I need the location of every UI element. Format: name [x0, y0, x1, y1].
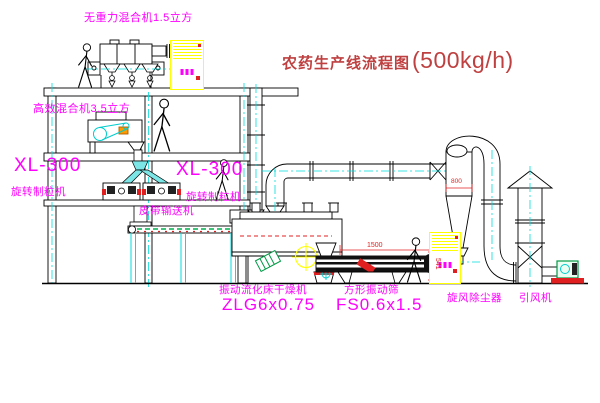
granulator-right-drawing — [142, 183, 181, 200]
control-cabinet-icon — [170, 40, 204, 90]
fan-drawing — [542, 261, 584, 284]
label-fan-name: 引风机 — [519, 293, 552, 304]
dimension-screen-length: 1500 — [367, 242, 383, 249]
label-granulator-name-mid: 旋转制粒机 — [186, 192, 241, 203]
cabinet-indicator-dot — [455, 236, 458, 239]
label-screen-model: FS0.6x1.5 — [336, 296, 423, 313]
label-belt-conveyor: 皮带输送机 — [139, 206, 194, 217]
high-efficiency-mixer-drawing — [88, 112, 144, 153]
label-cyclone-name: 旋风除尘器 — [447, 293, 502, 304]
title-capacity: (500kg/h) — [412, 47, 514, 74]
label-dryer-model: ZLG6x0.75 — [222, 296, 315, 313]
cad-drawing-viewport: 农药生产线流程图 (500kg/h) 无重力混合机1.5立方 高效混合机3.5立… — [0, 0, 600, 403]
label-dryer-name: 振动流化床干燥机 — [219, 285, 307, 296]
cabinet-button — [453, 269, 457, 273]
label-screen-name: 方形振动筛 — [344, 285, 399, 296]
cabinet-hatch — [173, 43, 201, 59]
label-granulator-model-left: XL-300 — [14, 156, 81, 175]
title-text: 农药生产线流程图 — [282, 52, 410, 73]
label-granulator-name-left: 旋转制粒机 — [11, 187, 66, 198]
dimension-screen-height: 541 — [434, 258, 441, 270]
cabinet-indicator-dot — [198, 44, 201, 47]
label-granulator-model-mid: XL-300 — [176, 160, 243, 179]
mixer-discharge-stub — [134, 150, 142, 161]
label-high-eff-mixer: 高效混合机3.5立方 — [33, 104, 130, 115]
gravity-mixer-drawing — [88, 40, 170, 88]
label-gravity-mixer: 无重力混合机1.5立方 — [84, 13, 193, 24]
cabinet-brand-mark — [181, 69, 194, 75]
granulator-left-drawing — [102, 183, 141, 200]
exhaust-duct-drawing — [266, 161, 446, 212]
downpipe-drawing — [481, 164, 516, 283]
dimension-cyclone-diameter: 800 — [451, 179, 462, 186]
human-figure — [154, 99, 169, 151]
cabinet-button — [196, 76, 200, 80]
drawing-title: 农药生产线流程图 (500kg/h) — [282, 47, 514, 74]
